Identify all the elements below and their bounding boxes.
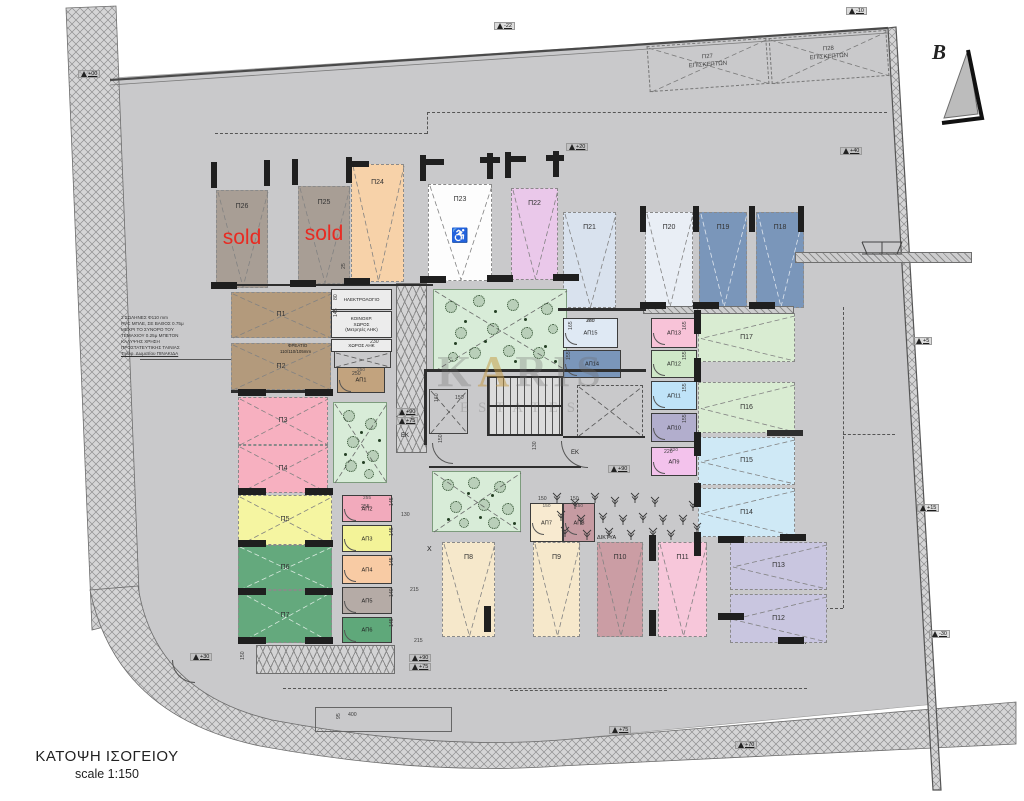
dimension-label: 150 <box>538 496 547 502</box>
setback-dashed-line <box>427 112 887 114</box>
parking-stall-Π16: Π16 <box>698 382 795 433</box>
level-marker: +75 <box>396 417 418 425</box>
column-marker <box>508 156 526 162</box>
level-marker: +90 <box>608 465 630 473</box>
visitor-stall-Π27: Π27ΕΠΙΣΚΕΠΤΩΝ <box>647 38 770 92</box>
level-value: +75 <box>419 664 428 670</box>
annotation-text: ΕΚ <box>401 433 409 439</box>
stall-label: Π15 <box>699 457 794 464</box>
storage-room-ΑΠ6: ΑΠ6 <box>342 617 392 643</box>
level-value: +90 <box>618 466 627 472</box>
stall-label: Π26 <box>217 203 267 210</box>
dimension-label: 215 <box>410 587 419 593</box>
stall-label: Π19 <box>700 224 746 231</box>
shrub-dot <box>344 453 347 456</box>
room-label: ΧΩΡΟΣ ΑΗΚ <box>332 343 391 349</box>
level-marker: +40 <box>840 147 862 155</box>
gate-symbol <box>858 236 906 260</box>
benchmark-icon <box>916 338 922 344</box>
level-marker: +20 <box>566 143 588 151</box>
tree-symbol <box>488 517 500 529</box>
wall-segment <box>424 369 427 445</box>
stall-markings <box>578 386 644 438</box>
benchmark-icon <box>412 664 418 670</box>
parking-stall-Π21: Π21 <box>563 212 616 308</box>
tree-symbol <box>521 327 533 339</box>
dimension-label: 220 <box>664 449 673 455</box>
parking-stall-Π15: Π15 <box>698 437 795 485</box>
benchmark-icon <box>399 418 405 424</box>
dimension-label: 155 <box>682 351 688 360</box>
level-value: +90 <box>419 655 428 661</box>
parking-stall-Π11: Π11 <box>658 542 707 637</box>
shrub-dot <box>544 345 547 348</box>
stall-label: Π2 <box>232 363 330 370</box>
tree-symbol <box>494 481 506 493</box>
dimension-label: 150 <box>240 651 246 660</box>
tree-symbol <box>469 347 481 359</box>
column-marker <box>780 534 806 541</box>
tree-symbol <box>442 479 454 491</box>
dimension-label: 400 <box>348 712 357 718</box>
column-marker <box>238 637 266 644</box>
storage-label: ΑΠ3 <box>343 536 391 542</box>
dimension-label: 150 <box>438 434 444 443</box>
parking-stall-Π13: Π13 <box>730 542 827 590</box>
dimension-label: 145 <box>389 618 395 627</box>
dimension-label: 255 <box>361 504 370 510</box>
tree-symbol <box>459 518 469 528</box>
tree-symbol <box>548 324 558 334</box>
parking-stall-Π9: Π9 <box>533 542 580 637</box>
column-marker <box>694 358 701 382</box>
benchmark-icon <box>399 409 405 415</box>
parking-stall-Π23: Π23♿ <box>428 184 492 281</box>
utility-room-3: ΧΩΡΟΣ ΑΗΚ <box>331 339 392 352</box>
dimension-label: 25 <box>341 263 347 269</box>
level-marker: +90 <box>396 408 418 416</box>
tree-symbol <box>468 477 480 489</box>
level-value: -10 <box>856 8 864 14</box>
tree-symbol <box>487 323 499 335</box>
level-value: +75 <box>406 418 415 424</box>
dimension-label: 230 <box>370 339 379 345</box>
level-value: -22 <box>504 23 512 29</box>
column-marker <box>305 588 333 595</box>
shrub-dot <box>479 516 482 519</box>
elevator-shaft <box>577 385 643 437</box>
tree-symbol <box>503 345 515 357</box>
level-marker: +15 <box>917 504 939 512</box>
vegetation-icon <box>574 512 588 526</box>
storage-room-ΑΠ3: ΑΠ3 <box>342 525 392 552</box>
dimension-label: 130 <box>532 441 538 450</box>
vegetation-icon <box>588 490 602 504</box>
annotation-text: ΔΙΚΤΥΑ <box>597 535 616 541</box>
note-line: Τηλεφ. Δωματίου ΠΙΝΑΚΙΔΑ <box>121 351 201 357</box>
column-marker <box>694 310 701 334</box>
vegetation-icon <box>636 510 650 524</box>
dimension-label: 165 <box>682 321 688 330</box>
column-marker <box>640 206 646 232</box>
room-label: (Μετρητές ΑΗΚ) <box>332 327 391 333</box>
storage-label: ΑΠ6 <box>343 627 391 633</box>
storage-label: ΑΠ5 <box>343 598 391 604</box>
stall-label: Π16 <box>699 404 794 411</box>
level-marker: +5 <box>913 337 932 345</box>
tree-symbol <box>347 436 359 448</box>
column-marker <box>718 536 744 543</box>
parking-stall-Π17: Π17 <box>698 313 795 362</box>
column-marker <box>349 161 369 167</box>
dimension-label: 145 <box>389 527 395 536</box>
benchmark-icon <box>497 23 503 29</box>
parking-stall-Π22: Π22 <box>511 188 558 280</box>
shrub-dot <box>513 522 516 525</box>
level-marker: +75 <box>409 663 431 671</box>
tree-symbol <box>507 299 519 311</box>
stall-label: Π12 <box>731 615 826 622</box>
benchmark-icon <box>612 727 618 733</box>
dimension-label: 80 <box>333 294 339 300</box>
storage-room-ΑΠ4: ΑΠ4 <box>342 555 392 584</box>
dimension-label: 130 <box>401 512 410 518</box>
vegetation-icon <box>676 512 690 526</box>
tree-symbol <box>478 499 490 511</box>
benchmark-icon <box>920 505 926 511</box>
level-value: +20 <box>576 144 585 150</box>
parking-stall-Π20: Π20 <box>645 212 693 308</box>
column-marker <box>694 432 701 456</box>
stall-label: Π25 <box>299 199 349 206</box>
vegetation-icon <box>616 512 630 526</box>
stall-label: Π3 <box>239 417 327 424</box>
column-marker <box>305 540 333 547</box>
level-marker: +00 <box>78 70 100 78</box>
storage-label: ΑΠ1 <box>338 377 384 383</box>
planted-area-3 <box>432 471 521 532</box>
benchmark-icon <box>569 144 575 150</box>
hatched-strip <box>396 283 427 453</box>
column-marker <box>211 162 217 188</box>
vegetation-icon <box>596 510 610 524</box>
shrub-dot <box>362 461 365 464</box>
parking-stall-Π19: Π19 <box>699 212 747 308</box>
vegetation-icon <box>580 527 594 541</box>
wall-segment <box>558 308 646 311</box>
dimension-label: 150 <box>455 395 464 401</box>
dimension-label: 140 <box>389 588 395 597</box>
setback-dashed-line <box>215 133 427 135</box>
dimension-label: 160 <box>434 393 440 402</box>
setback-dashed-line <box>843 434 895 436</box>
tree-symbol <box>541 303 553 315</box>
storage-room-ΑΠ9: ΑΠ9220 <box>651 447 697 476</box>
shrub-dot <box>491 494 494 497</box>
shrub-dot <box>447 518 450 521</box>
column-marker <box>238 488 266 495</box>
column-marker <box>292 159 298 185</box>
storage-room-ΑΠ1: ΑΠ1250 <box>337 367 385 393</box>
shrub-dot <box>484 340 487 343</box>
level-value: +70 <box>745 742 754 748</box>
column-marker <box>238 389 266 396</box>
benchmark-icon <box>193 654 199 660</box>
column-marker <box>238 540 266 547</box>
parking-stall-Π4: Π4 <box>238 445 328 493</box>
stall-label: Π13 <box>731 562 826 569</box>
tree-symbol <box>473 295 485 307</box>
door-arc <box>432 443 453 464</box>
shrub-dot <box>454 342 457 345</box>
benchmark-icon <box>843 148 849 154</box>
storage-label: ΑΠ15 <box>564 330 617 336</box>
shrub-dot <box>378 439 381 442</box>
planted-area-2 <box>333 402 387 483</box>
level-value: +15 <box>927 505 936 511</box>
column-marker <box>778 637 804 644</box>
storage-label: ΑΠ4 <box>343 567 391 573</box>
parking-stall-Π10: Π10 <box>597 542 643 637</box>
annotation-text: X <box>427 546 432 553</box>
shrub-dot <box>464 320 467 323</box>
setback-dashed-line <box>427 112 429 134</box>
tree-symbol <box>502 503 514 515</box>
level-value: +30 <box>200 654 209 660</box>
column-marker <box>694 483 701 507</box>
column-marker <box>305 389 333 396</box>
dimension-label: 280 <box>586 318 595 324</box>
stall-label: Π1 <box>232 311 330 318</box>
plan-layer: Π26soldΠ25soldΠ24Π23♿Π22Π21Π20Π19Π18Π17Π… <box>0 0 1024 801</box>
column-marker <box>749 302 775 309</box>
shrub-dot <box>360 431 363 434</box>
level-value: +00 <box>88 71 97 77</box>
level-marker: -22 <box>494 22 515 30</box>
storage-label: ΑΠ9 <box>652 459 696 465</box>
vegetation-icon <box>608 494 622 508</box>
dimension-label: 145 <box>389 497 395 506</box>
shrub-dot <box>524 318 527 321</box>
door-arc <box>172 660 195 683</box>
stall-label: Π10 <box>598 554 642 561</box>
utilities-note: 2 ΣΩΛΗΝΕΣ Φ110 mmPVC ΜΠΛΕ, ΣΕ ΒΑΘΟΣ 0.75… <box>121 315 201 357</box>
stall-label: Π5 <box>239 516 331 523</box>
level-marker: +90 <box>409 654 431 662</box>
setback-dashed-line <box>510 690 667 692</box>
vegetation-icon <box>624 527 638 541</box>
parking-stall-Π25: Π25sold <box>298 186 350 284</box>
level-marker: +30 <box>190 653 212 661</box>
dimension-label: 155 <box>682 414 688 423</box>
column-marker <box>546 155 564 161</box>
planter-outline <box>315 707 452 732</box>
shrub-dot <box>467 492 470 495</box>
dimension-label: 150 <box>570 496 579 502</box>
dimension-label: 155 <box>682 383 688 392</box>
service-shaft-2 <box>334 351 391 368</box>
annotation-text: 110/110/105mm <box>280 349 311 354</box>
parking-stall-Π7: Π7 <box>238 590 332 643</box>
column-marker <box>305 637 333 644</box>
tree-symbol <box>448 352 458 362</box>
level-marker: +70 <box>735 741 757 749</box>
shrub-dot <box>514 360 517 363</box>
column-marker <box>694 532 701 556</box>
annotation-text: ΦΡΕΑΤΙΟ <box>288 343 307 348</box>
stall-label: Π17 <box>699 334 794 341</box>
shrub-dot <box>554 360 557 363</box>
parking-stall-Π24: Π24 <box>351 164 404 282</box>
tree-symbol <box>364 469 374 479</box>
tree-symbol <box>343 410 355 422</box>
vegetation-icon <box>550 490 564 504</box>
dimension-label: 95 <box>336 713 342 719</box>
visitor-stall-Π28: Π28ΕΠΙΣΚΕΠΤΩΝ <box>769 30 890 84</box>
level-value: +40 <box>850 148 859 154</box>
parking-stall-Π26: Π26sold <box>216 190 268 288</box>
column-marker <box>693 206 699 232</box>
dimension-label: 155 <box>566 351 572 360</box>
wall-segment <box>424 369 646 372</box>
hatched-strip <box>256 645 395 674</box>
column-marker <box>693 302 719 309</box>
level-value: +90 <box>406 409 415 415</box>
north-label: B <box>932 40 946 65</box>
benchmark-icon <box>81 71 87 77</box>
wall-segment <box>429 466 581 468</box>
column-marker <box>798 206 804 232</box>
parking-stall-Π6: Π6 <box>238 545 332 590</box>
tree-symbol <box>455 327 467 339</box>
column-marker <box>649 610 656 636</box>
stall-label: Π22 <box>512 200 557 207</box>
sold-label: sold <box>223 227 262 248</box>
stall-label: Π4 <box>239 465 327 472</box>
stall-label: Π8 <box>443 554 494 561</box>
vegetation-icon <box>554 508 568 522</box>
storage-dimension: 255 <box>343 496 391 501</box>
dimension-label: 215 <box>414 638 423 644</box>
column-marker <box>305 488 333 495</box>
dimension-label: 165 <box>568 321 574 330</box>
wall-segment <box>767 430 803 436</box>
level-marker: -10 <box>846 7 867 15</box>
storage-label: ΑΠ10 <box>652 425 696 431</box>
north-arrow: B <box>926 38 1000 131</box>
tree-symbol <box>345 460 357 472</box>
tree-symbol <box>365 418 377 430</box>
column-marker <box>749 206 755 232</box>
storage-room-ΑΠ5: ΑΠ5 <box>342 587 392 614</box>
storage-room-ΑΠ11: ΑΠ11 <box>651 381 697 410</box>
stall-label: Π20 <box>646 224 692 231</box>
column-marker <box>553 274 579 281</box>
dimension-label: 250 <box>352 371 361 377</box>
column-marker <box>480 157 500 163</box>
parking-stall-Π3: Π3 <box>238 397 328 445</box>
storage-dimension: 250 <box>338 368 384 373</box>
benchmark-icon <box>849 8 855 14</box>
storage-dimension: 220 <box>652 448 696 453</box>
storage-label: ΑΠ12 <box>652 361 696 367</box>
level-value: -30 <box>939 631 947 637</box>
parking-stall-Π12: Π12 <box>730 594 827 643</box>
vegetation-icon <box>648 494 662 508</box>
storage-label: ΑΠ11 <box>652 393 696 399</box>
utility-room-2: ΚΟΙΝΟΧΡ.ΧΩΡΟΣ(Μετρητές ΑΗΚ) <box>331 311 392 338</box>
planted-area-1 <box>433 289 567 371</box>
parking-stall-Π5: Π5 <box>238 495 332 545</box>
vegetation-icon <box>656 512 670 526</box>
vegetation-icon <box>628 490 642 504</box>
storage-label: ΑΠ13 <box>652 330 696 336</box>
leader-line <box>140 359 232 361</box>
drawing-title: ΚΑΤΟΨΗ ΙΣΟΓΕΙΟΥ <box>22 748 192 765</box>
tree-symbol <box>367 450 379 462</box>
drawing-scale: scale 1:150 <box>22 767 192 781</box>
stall-label: Π24 <box>352 179 403 186</box>
wheelchair-icon: ♿ <box>429 227 491 244</box>
setback-dashed-line <box>843 307 845 608</box>
benchmark-icon <box>611 466 617 472</box>
column-marker <box>649 535 656 561</box>
dimension-label: 145 <box>333 308 339 317</box>
level-marker: +75 <box>609 726 631 734</box>
storage-room-ΑΠ10: ΑΠ10 <box>651 413 697 442</box>
column-marker <box>344 278 370 285</box>
utility-room-1: ΗΛΕΚΤΡΟΛΟΓΙΟ <box>331 289 392 310</box>
annotation-text: ΕΚ <box>571 450 579 456</box>
wall-segment <box>213 284 433 286</box>
benchmark-icon <box>412 655 418 661</box>
level-value: +75 <box>619 727 628 733</box>
shrub-dot <box>494 310 497 313</box>
benchmark-icon <box>932 631 938 637</box>
stall-label: Π7 <box>239 612 331 619</box>
column-marker <box>487 275 513 282</box>
dimension-label: 145 <box>389 557 395 566</box>
column-marker <box>211 282 237 289</box>
title-block: ΚΑΤΟΨΗ ΙΣΟΓΕΙΟΥ scale 1:150 <box>22 748 192 781</box>
column-marker <box>420 276 446 283</box>
wall-segment <box>563 436 645 438</box>
tree-symbol <box>445 301 457 313</box>
staircase <box>487 376 563 436</box>
parking-stall-Π1: Π1 <box>231 292 331 338</box>
stall-label: Π21 <box>564 224 615 231</box>
column-marker <box>484 606 491 632</box>
stall-label: Π23 <box>429 196 491 203</box>
benchmark-icon <box>738 742 744 748</box>
parking-stall-Π14: Π14 <box>698 488 795 537</box>
storage-room-ΑΠ13: ΑΠ13 <box>651 318 697 348</box>
floor-plan-page: Π26soldΠ25soldΠ24Π23♿Π22Π21Π20Π19Π18Π17Π… <box>0 0 1024 801</box>
storage-label: ΑΠ14 <box>564 361 620 367</box>
stall-label: Π6 <box>239 564 331 571</box>
column-marker <box>264 160 270 186</box>
storage-room-ΑΠ12: ΑΠ12 <box>651 350 697 378</box>
column-marker <box>640 302 666 309</box>
column-marker <box>718 613 744 620</box>
stall-label: Π14 <box>699 509 794 516</box>
vegetation-icon <box>664 527 678 541</box>
level-marker: -30 <box>929 630 950 638</box>
column-marker <box>238 588 266 595</box>
tree-symbol <box>533 347 545 359</box>
sold-label: sold <box>305 223 344 244</box>
vegetation-icon <box>558 524 572 538</box>
